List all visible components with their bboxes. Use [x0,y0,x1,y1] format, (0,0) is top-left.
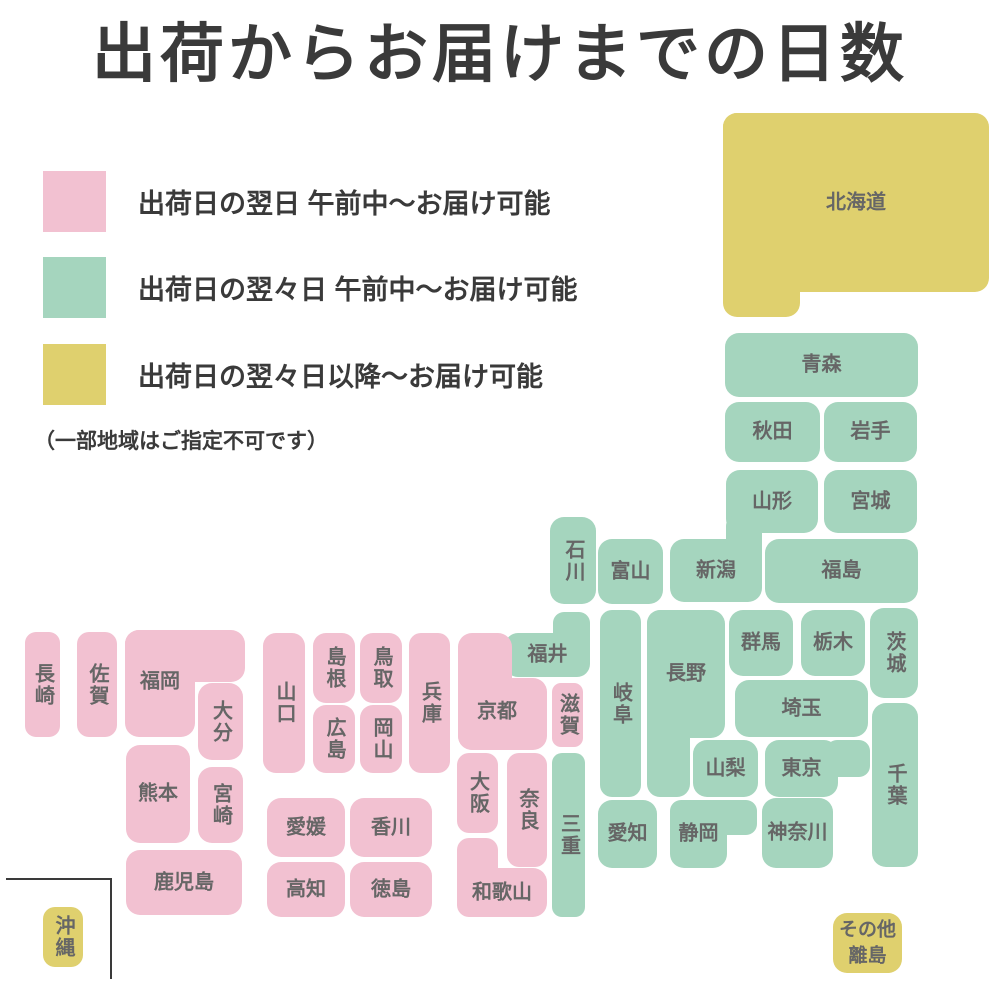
prefecture-osaka-label: 大阪 [468,771,488,815]
prefecture-fukushima-label: 福島 [822,558,862,585]
prefecture-fukui-label: 福井 [528,642,568,669]
prefecture-hokkaido-label: 北海道 [826,189,886,216]
prefecture-nagano-part2 [647,610,690,797]
prefecture-tochigi-label: 栃木 [813,630,853,657]
prefecture-shizuoka-label: 静岡 [679,821,719,848]
prefecture-kumamoto-label: 熊本 [138,781,178,808]
prefecture-saitama-label: 埼玉 [782,695,822,722]
prefecture-fukuoka-label: 福岡 [140,669,180,696]
prefecture-okinawa-label: 沖縄 [53,915,73,959]
prefecture-kagoshima-label: 鹿児島 [154,869,214,896]
prefecture-nara-label: 奈良 [517,788,537,832]
prefecture-ibaraki-label: 茨城 [884,631,904,675]
prefecture-okayama-label: 岡山 [371,717,391,761]
prefecture-gifu-label: 岐阜 [611,682,631,726]
prefecture-wakayama-label: 和歌山 [472,879,532,906]
prefecture-yamagata-label: 山形 [752,488,792,515]
prefecture-ehime-label: 愛媛 [286,814,326,841]
prefecture-nagano-label: 長野 [666,661,706,688]
prefecture-niigata-label: 新潟 [696,557,736,584]
okinawa-inset-border-horizontal [6,878,112,880]
prefecture-miyazaki-label: 宮崎 [211,783,231,827]
prefecture-kyoto-label: 京都 [477,699,517,726]
prefecture-chiba-label: 千葉 [885,763,905,807]
delivery-days-infographic: 出荷からお届けまでの日数 出荷日の翌日 午前中〜お届け可能 出荷日の翌々日 午前… [0,0,1000,1000]
prefecture-miyagi-label: 宮城 [851,488,891,515]
prefecture-hyogo-label: 兵庫 [420,681,440,725]
prefecture-kagawa-label: 香川 [371,814,411,841]
okinawa-inset-border-vertical [110,878,112,979]
prefecture-tokushima-label: 徳島 [371,876,411,903]
prefecture-akita-label: 秋田 [753,419,793,446]
prefecture-mie-label: 三重 [559,813,579,857]
prefecture-hokkaido-part2 [723,113,800,317]
prefecture-hiroshima-label: 広島 [324,717,344,761]
prefecture-tottori-label: 鳥取 [371,646,391,690]
prefecture-tokyo-part2 [826,740,870,777]
prefecture-kochi-label: 高知 [286,876,326,903]
prefecture-yamanashi-label: 山梨 [706,755,746,782]
prefecture-kanagawa-label: 神奈川 [768,820,828,847]
prefecture-saga-label: 佐賀 [87,663,107,707]
japan-map: 北海道青森秋田岩手山形宮城新潟福島石川富山福井群馬栃木茨城埼玉千葉東京神奈川山梨… [0,0,1000,1000]
prefecture-aichi-label: 愛知 [608,821,648,848]
prefecture-aomori-label: 青森 [802,352,842,379]
prefecture-shimane-label: 島根 [324,646,344,690]
prefecture-gunma-label: 群馬 [741,630,781,657]
prefecture-toyama-label: 富山 [611,558,651,585]
prefecture-tokyo-label: 東京 [782,755,822,782]
prefecture-iwate-label: 岩手 [851,419,891,446]
prefecture-oita-label: 大分 [211,700,231,744]
prefecture-other-islands-label: その他 離島 [839,917,896,968]
prefecture-ishikawa-label: 石川 [563,539,583,583]
prefecture-yamaguchi-label: 山口 [274,681,294,725]
prefecture-shiga-label: 滋賀 [558,693,578,737]
prefecture-nagasaki-label: 長崎 [33,663,53,707]
